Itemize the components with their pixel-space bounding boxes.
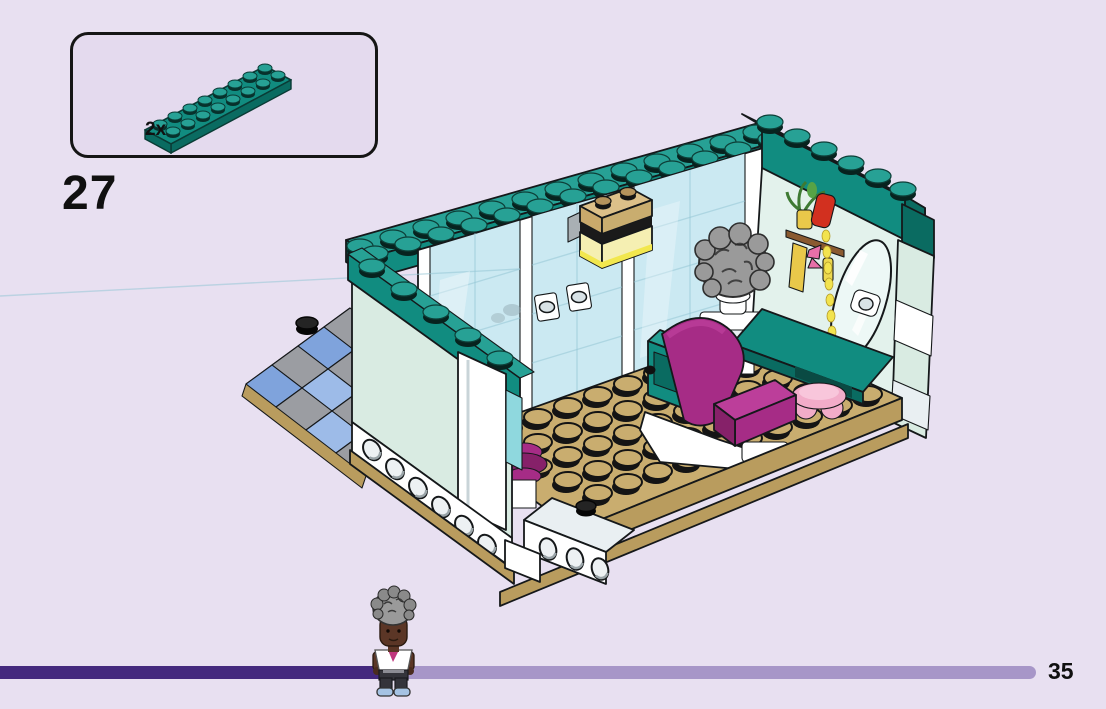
instruction-page: 2x 27 35 [0,0,1106,709]
part-icon-plate-2x8 [73,35,374,154]
parts-callout-box: 2x [70,32,378,158]
mini-doll-figure [371,586,416,696]
progress-bar [0,666,1036,679]
gray-afro-hair [371,586,416,625]
part-quantity-label: 2x [145,119,166,141]
progress-bar-fill [0,666,390,679]
step-number: 27 [62,166,117,221]
side-window [506,390,522,470]
black-round-stud [296,317,318,335]
page-number: 35 [1048,658,1074,685]
